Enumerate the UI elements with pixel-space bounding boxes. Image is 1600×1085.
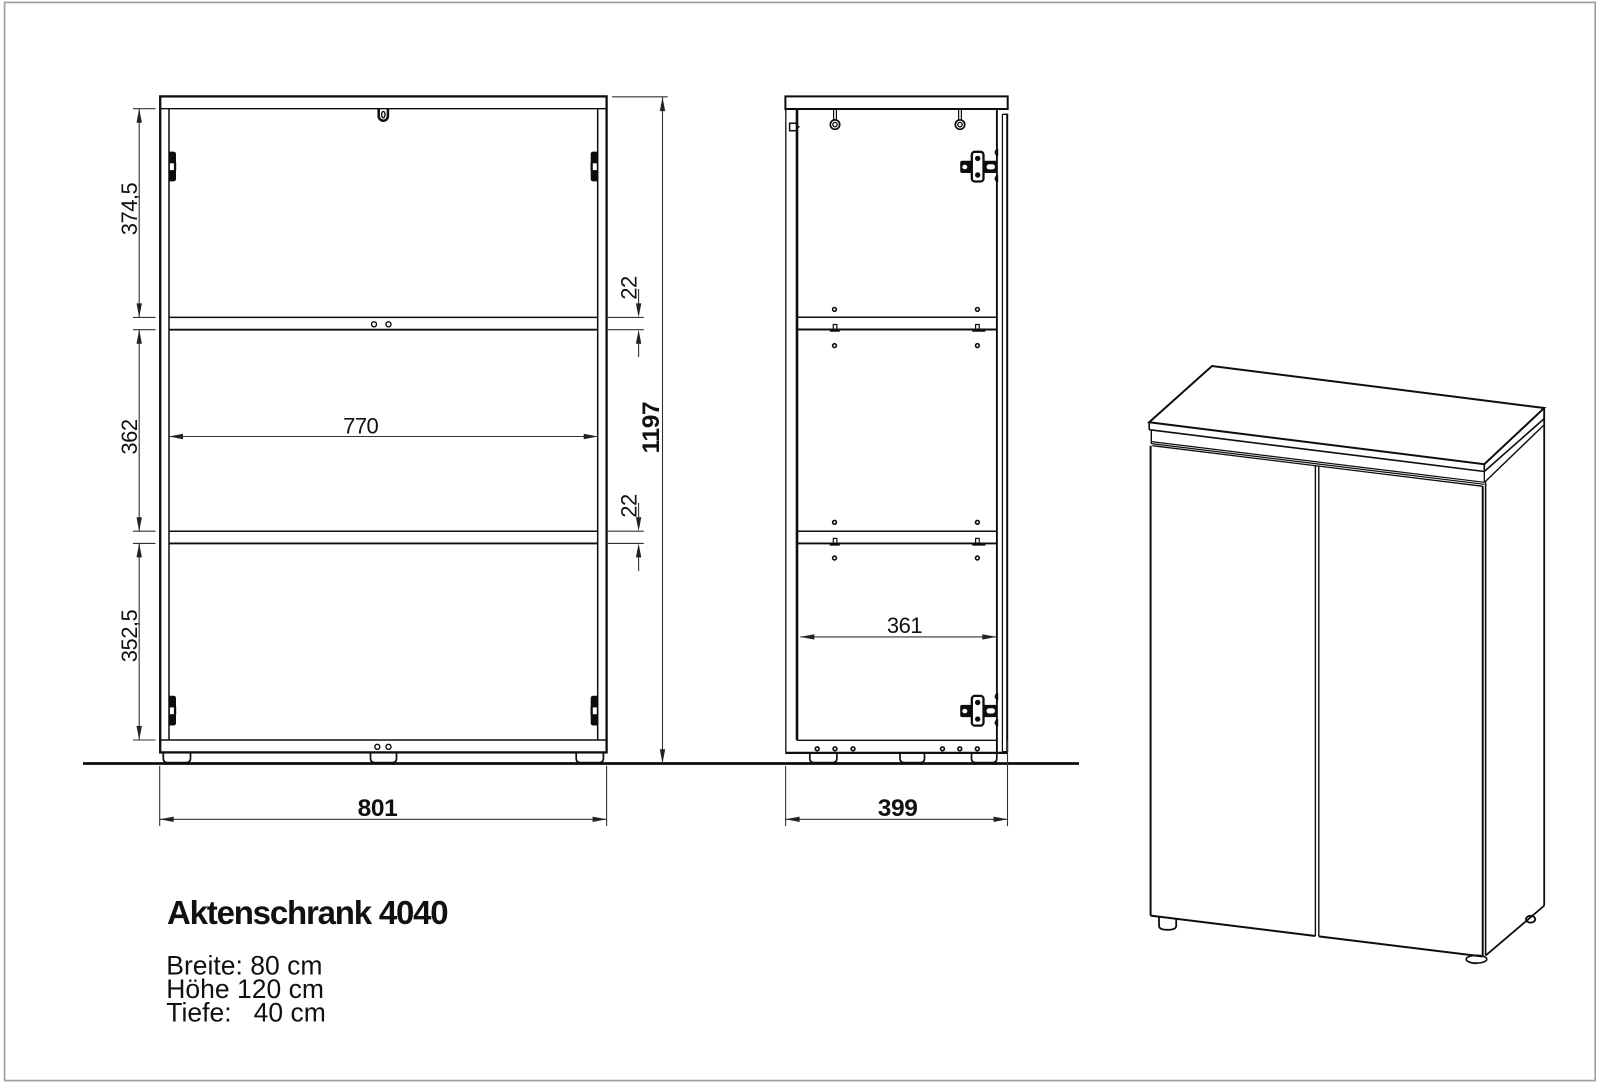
svg-text:352,5: 352,5 — [117, 609, 142, 662]
svg-text:361: 361 — [887, 613, 922, 638]
svg-text:801: 801 — [358, 795, 398, 822]
svg-text:22: 22 — [616, 494, 641, 518]
svg-text:Tiefe: 40 cm: Tiefe: 40 cm — [166, 997, 326, 1027]
svg-text:362: 362 — [117, 419, 142, 454]
svg-text:1197: 1197 — [638, 402, 665, 454]
svg-text:22: 22 — [616, 276, 641, 300]
svg-text:Aktenschrank 4040: Aktenschrank 4040 — [167, 894, 447, 931]
svg-text:374,5: 374,5 — [117, 182, 142, 235]
svg-text:399: 399 — [878, 795, 918, 822]
svg-text:770: 770 — [343, 413, 378, 438]
